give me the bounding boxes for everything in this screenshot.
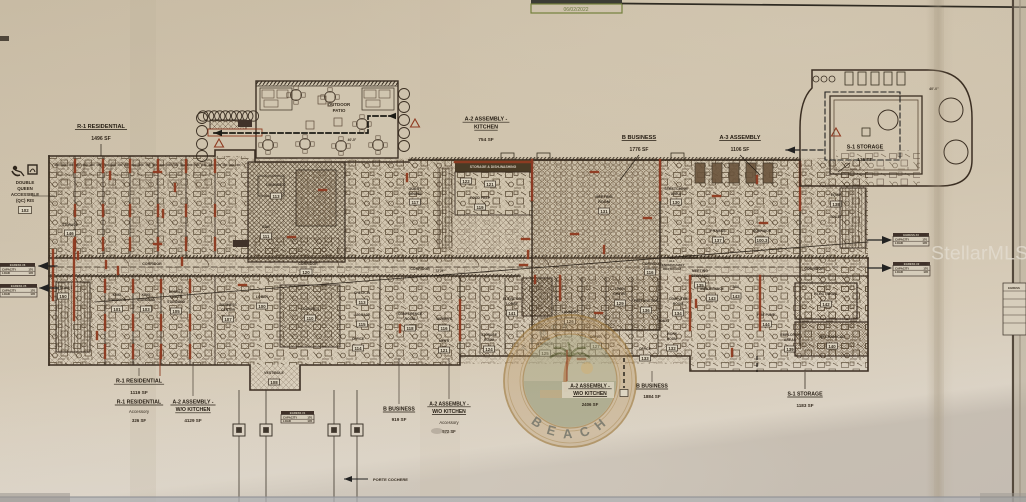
svg-text:W/O KITCHEN: W/O KITCHEN — [176, 407, 211, 413]
svg-text:LOAD: LOAD — [283, 419, 291, 423]
svg-text:VESTIBULE: VESTIBULE — [264, 371, 284, 375]
svg-text:BUSINESS: BUSINESS — [219, 303, 237, 307]
svg-text:W/O KITCHEN: W/O KITCHEN — [432, 409, 466, 415]
svg-text:STORAGE: STORAGE — [481, 333, 497, 337]
svg-text:114: 114 — [354, 346, 362, 351]
svg-text:ROOM: ROOM — [673, 302, 684, 306]
svg-text:1119 SF: 1119 SF — [130, 390, 148, 396]
svg-text:113: 113 — [272, 194, 280, 199]
svg-text:A-2 ASSEMBLY -: A-2 ASSEMBLY - — [465, 117, 508, 123]
svg-text:CORRIDOR: CORRIDOR — [142, 262, 162, 266]
svg-text:LOAD: LOAD — [895, 241, 903, 245]
svg-text:FOOD PREP: FOOD PREP — [470, 196, 491, 200]
svg-text:754 SF: 754 SF — [478, 137, 494, 143]
svg-text:R-1 RESIDENTIAL: R-1 RESIDENTIAL — [116, 379, 163, 385]
svg-text:LOAD: LOAD — [2, 292, 10, 296]
svg-text:AREA: AREA — [671, 192, 682, 196]
svg-text:118: 118 — [406, 326, 414, 331]
svg-text:4129 SF: 4129 SF — [184, 418, 202, 423]
svg-text:144: 144 — [762, 322, 770, 327]
svg-text:MAINTENANCE: MAINTENANCE — [700, 287, 724, 291]
svg-text:143: 143 — [708, 296, 716, 301]
svg-text:LOUNGE-1: LOUNGE-1 — [301, 307, 320, 311]
svg-text:102: 102 — [21, 208, 29, 213]
svg-text:137: 137 — [714, 238, 722, 243]
svg-text:CORRIDOR: CORRIDOR — [298, 262, 318, 266]
svg-text:STRETCHING: STRETCHING — [664, 187, 688, 191]
svg-text:WORK: WORK — [667, 332, 678, 336]
svg-text:117: 117 — [411, 200, 419, 205]
svg-text:LOAD: LOAD — [895, 270, 903, 274]
svg-text:ELECTRICAL: ELECTRICAL — [814, 292, 839, 296]
svg-text:A-2 ASSEMBLY -: A-2 ASSEMBLY - — [570, 383, 610, 389]
svg-text:B BUSINESS: B BUSINESS — [383, 406, 415, 412]
svg-text:133: 133 — [641, 356, 649, 361]
svg-text:R-1 RESIDENTIAL: R-1 RESIDENTIAL — [77, 124, 125, 130]
svg-text:06/02/2022: 06/02/2022 — [563, 7, 588, 13]
svg-text:MEETING: MEETING — [692, 269, 708, 273]
svg-text:1776 SF: 1776 SF — [630, 147, 649, 153]
svg-text:116: 116 — [646, 270, 654, 275]
svg-text:StellarMLS: StellarMLS — [931, 243, 1026, 265]
svg-text:LUGGAGE: LUGGAGE — [354, 313, 371, 317]
svg-text:113: 113 — [358, 300, 366, 305]
svg-text:PREFUNCTION: PREFUNCTION — [634, 299, 659, 303]
svg-text:CHECK-IN: CHECK-IN — [354, 291, 371, 295]
svg-text:ROOM: ROOM — [405, 317, 416, 321]
svg-text:129: 129 — [616, 301, 624, 306]
svg-text:MEETING: MEETING — [595, 195, 612, 199]
svg-text:115: 115 — [358, 322, 366, 327]
svg-text:STANDARD: STANDARD — [167, 300, 185, 304]
svg-text:EGRESS #2: EGRESS #2 — [904, 262, 920, 266]
svg-text:PORTE COCHERE: PORTE COCHERE — [373, 477, 408, 482]
svg-text:145: 145 — [30, 292, 35, 296]
svg-text:A-2 ASSEMBLY -: A-2 ASSEMBLY - — [429, 401, 469, 407]
svg-text:EGRESS: EGRESS — [1008, 286, 1020, 290]
svg-text:STAIR 1: STAIR 1 — [60, 286, 73, 290]
svg-text:A-3 ASSEMBLY: A-3 ASSEMBLY — [720, 135, 761, 141]
svg-text:2406 SF: 2406 SF — [582, 402, 599, 407]
svg-text:LOUNGE-2: LOUNGE-2 — [266, 183, 286, 187]
svg-text:ROOM: ROOM — [484, 338, 494, 342]
svg-text:DOUBLE: DOUBLE — [169, 290, 184, 294]
svg-text:136: 136 — [642, 308, 650, 313]
svg-text:CORRIDOR: CORRIDOR — [410, 267, 430, 271]
svg-text:LOAD: LOAD — [2, 271, 10, 275]
svg-text:130: 130 — [672, 200, 680, 205]
svg-text:PATIO: PATIO — [333, 108, 346, 113]
svg-text:LOBBY: LOBBY — [256, 295, 269, 299]
svg-text:110: 110 — [306, 316, 314, 321]
svg-text:R-1 RESIDENTIAL: R-1 RESIDENTIAL — [117, 399, 162, 405]
svg-text:JAN.: JAN. — [732, 285, 739, 289]
svg-text:B BUSINESS: B BUSINESS — [622, 135, 656, 141]
svg-text:EGRESS #6: EGRESS #6 — [10, 263, 26, 267]
svg-text:FITNESS: FITNESS — [710, 229, 726, 233]
svg-text:143: 143 — [732, 294, 740, 299]
svg-text:ROOM: ROOM — [598, 200, 610, 204]
svg-text:TOILET: TOILET — [658, 319, 669, 323]
svg-text:145: 145 — [307, 419, 312, 423]
svg-text:MEN'S: MEN'S — [439, 339, 449, 343]
svg-text:STORAGE & DISH-WASHING: STORAGE & DISH-WASHING — [470, 165, 517, 169]
svg-text:138: 138 — [832, 202, 840, 207]
svg-text:EGRESS #5: EGRESS #5 — [11, 284, 27, 288]
svg-text:CHUTES: CHUTES — [613, 292, 626, 296]
svg-text:326 SF: 326 SF — [132, 418, 146, 423]
svg-text:S-1 STORAGE: S-1 STORAGE — [847, 145, 884, 151]
svg-text:135 SF: 135 SF — [857, 157, 873, 163]
svg-text:B BUSINESS: B BUSINESS — [636, 383, 668, 389]
svg-text:(QC) RIS: (QC) RIS — [16, 198, 34, 203]
svg-text:121: 121 — [486, 182, 494, 187]
svg-text:COMPUTER: COMPUTER — [669, 297, 688, 301]
svg-text:124: 124 — [485, 347, 493, 352]
svg-text:101: 101 — [113, 307, 121, 312]
svg-text:108: 108 — [270, 380, 278, 385]
svg-text:GUEST: GUEST — [408, 187, 422, 191]
svg-text:BAR: BAR — [262, 225, 270, 229]
svg-text:CONFERENCE: CONFERENCE — [398, 312, 423, 316]
svg-text:ELEVATOR: ELEVATOR — [503, 297, 521, 301]
svg-text:119: 119 — [476, 205, 484, 210]
svg-text:LOBBY: LOBBY — [506, 302, 519, 306]
svg-text:ROOM: ROOM — [667, 337, 678, 341]
svg-text:RESTROOM: RESTROOM — [663, 267, 681, 271]
svg-text:1106 SF: 1106 SF — [731, 147, 750, 153]
svg-text:1183 SF: 1183 SF — [796, 403, 813, 408]
svg-text:181'-6" MAXIMUM TRAVEL DISTANC: 181'-6" MAXIMUM TRAVEL DISTANCE — [670, 256, 732, 260]
svg-text:1496 SF: 1496 SF — [91, 136, 111, 142]
svg-text:STORAGE: STORAGE — [62, 223, 78, 227]
svg-text:EGRESS #3: EGRESS #3 — [903, 233, 919, 237]
svg-text:121: 121 — [440, 348, 448, 353]
svg-text:141: 141 — [508, 311, 516, 316]
svg-text:122: 122 — [462, 179, 470, 184]
svg-text:LAUNDRY: LAUNDRY — [562, 310, 579, 314]
svg-text:105: 105 — [172, 309, 180, 314]
svg-text:CORRIDOR: CORRIDOR — [753, 229, 772, 233]
svg-text:100: 100 — [258, 304, 266, 309]
svg-text:1884 SF: 1884 SF — [643, 394, 661, 399]
svg-text:Accessory: Accessory — [439, 420, 459, 425]
svg-text:DINING: DINING — [408, 192, 421, 196]
svg-text:142: 142 — [822, 302, 830, 307]
svg-text:116: 116 — [440, 326, 448, 331]
svg-text:40'-5": 40'-5" — [348, 138, 357, 142]
svg-text:134: 134 — [674, 311, 682, 316]
svg-text:100.3: 100.3 — [757, 238, 769, 243]
svg-text:WOMEN'S: WOMEN'S — [436, 317, 451, 321]
svg-text:111: 111 — [263, 234, 270, 239]
svg-text:72'-9": 72'-9" — [435, 269, 445, 273]
svg-text:EGRESS #1: EGRESS #1 — [290, 411, 306, 415]
svg-text:107: 107 — [224, 317, 232, 322]
svg-text:131: 131 — [600, 209, 608, 214]
svg-text:146: 146 — [66, 231, 74, 236]
svg-text:KITCHEN: KITCHEN — [474, 125, 498, 131]
svg-text:MECHANICAL: MECHANICAL — [819, 335, 845, 339]
svg-text:132: 132 — [668, 346, 676, 351]
svg-text:W/O KITCHEN: W/O KITCHEN — [573, 391, 607, 397]
svg-text:QUEEN: QUEEN — [17, 186, 33, 191]
svg-text:919 SF: 919 SF — [392, 417, 407, 422]
svg-text:140: 140 — [828, 344, 836, 349]
svg-text:DOUBLE: DOUBLE — [16, 180, 35, 185]
svg-text:OFFICE: OFFICE — [639, 347, 651, 351]
svg-text:OFFICE: OFFICE — [352, 337, 365, 341]
svg-text:KING: KING — [113, 293, 122, 297]
svg-text:150: 150 — [59, 294, 67, 299]
svg-text:103: 103 — [142, 307, 150, 312]
svg-text:120: 120 — [302, 270, 310, 275]
svg-text:A-2 ASSEMBLY -: A-2 ASSEMBLY - — [172, 399, 213, 405]
svg-text:139: 139 — [786, 347, 794, 352]
svg-text:145: 145 — [28, 271, 33, 275]
svg-text:KING: KING — [142, 293, 151, 297]
svg-text:Accessory: Accessory — [129, 409, 150, 414]
svg-text:CENTER: CENTER — [221, 308, 235, 312]
svg-text:CORRIDOR: CORRIDOR — [804, 267, 824, 271]
svg-text:S-1 STORAGE: S-1 STORAGE — [787, 391, 823, 397]
svg-text:LINEN: LINEN — [615, 287, 625, 291]
